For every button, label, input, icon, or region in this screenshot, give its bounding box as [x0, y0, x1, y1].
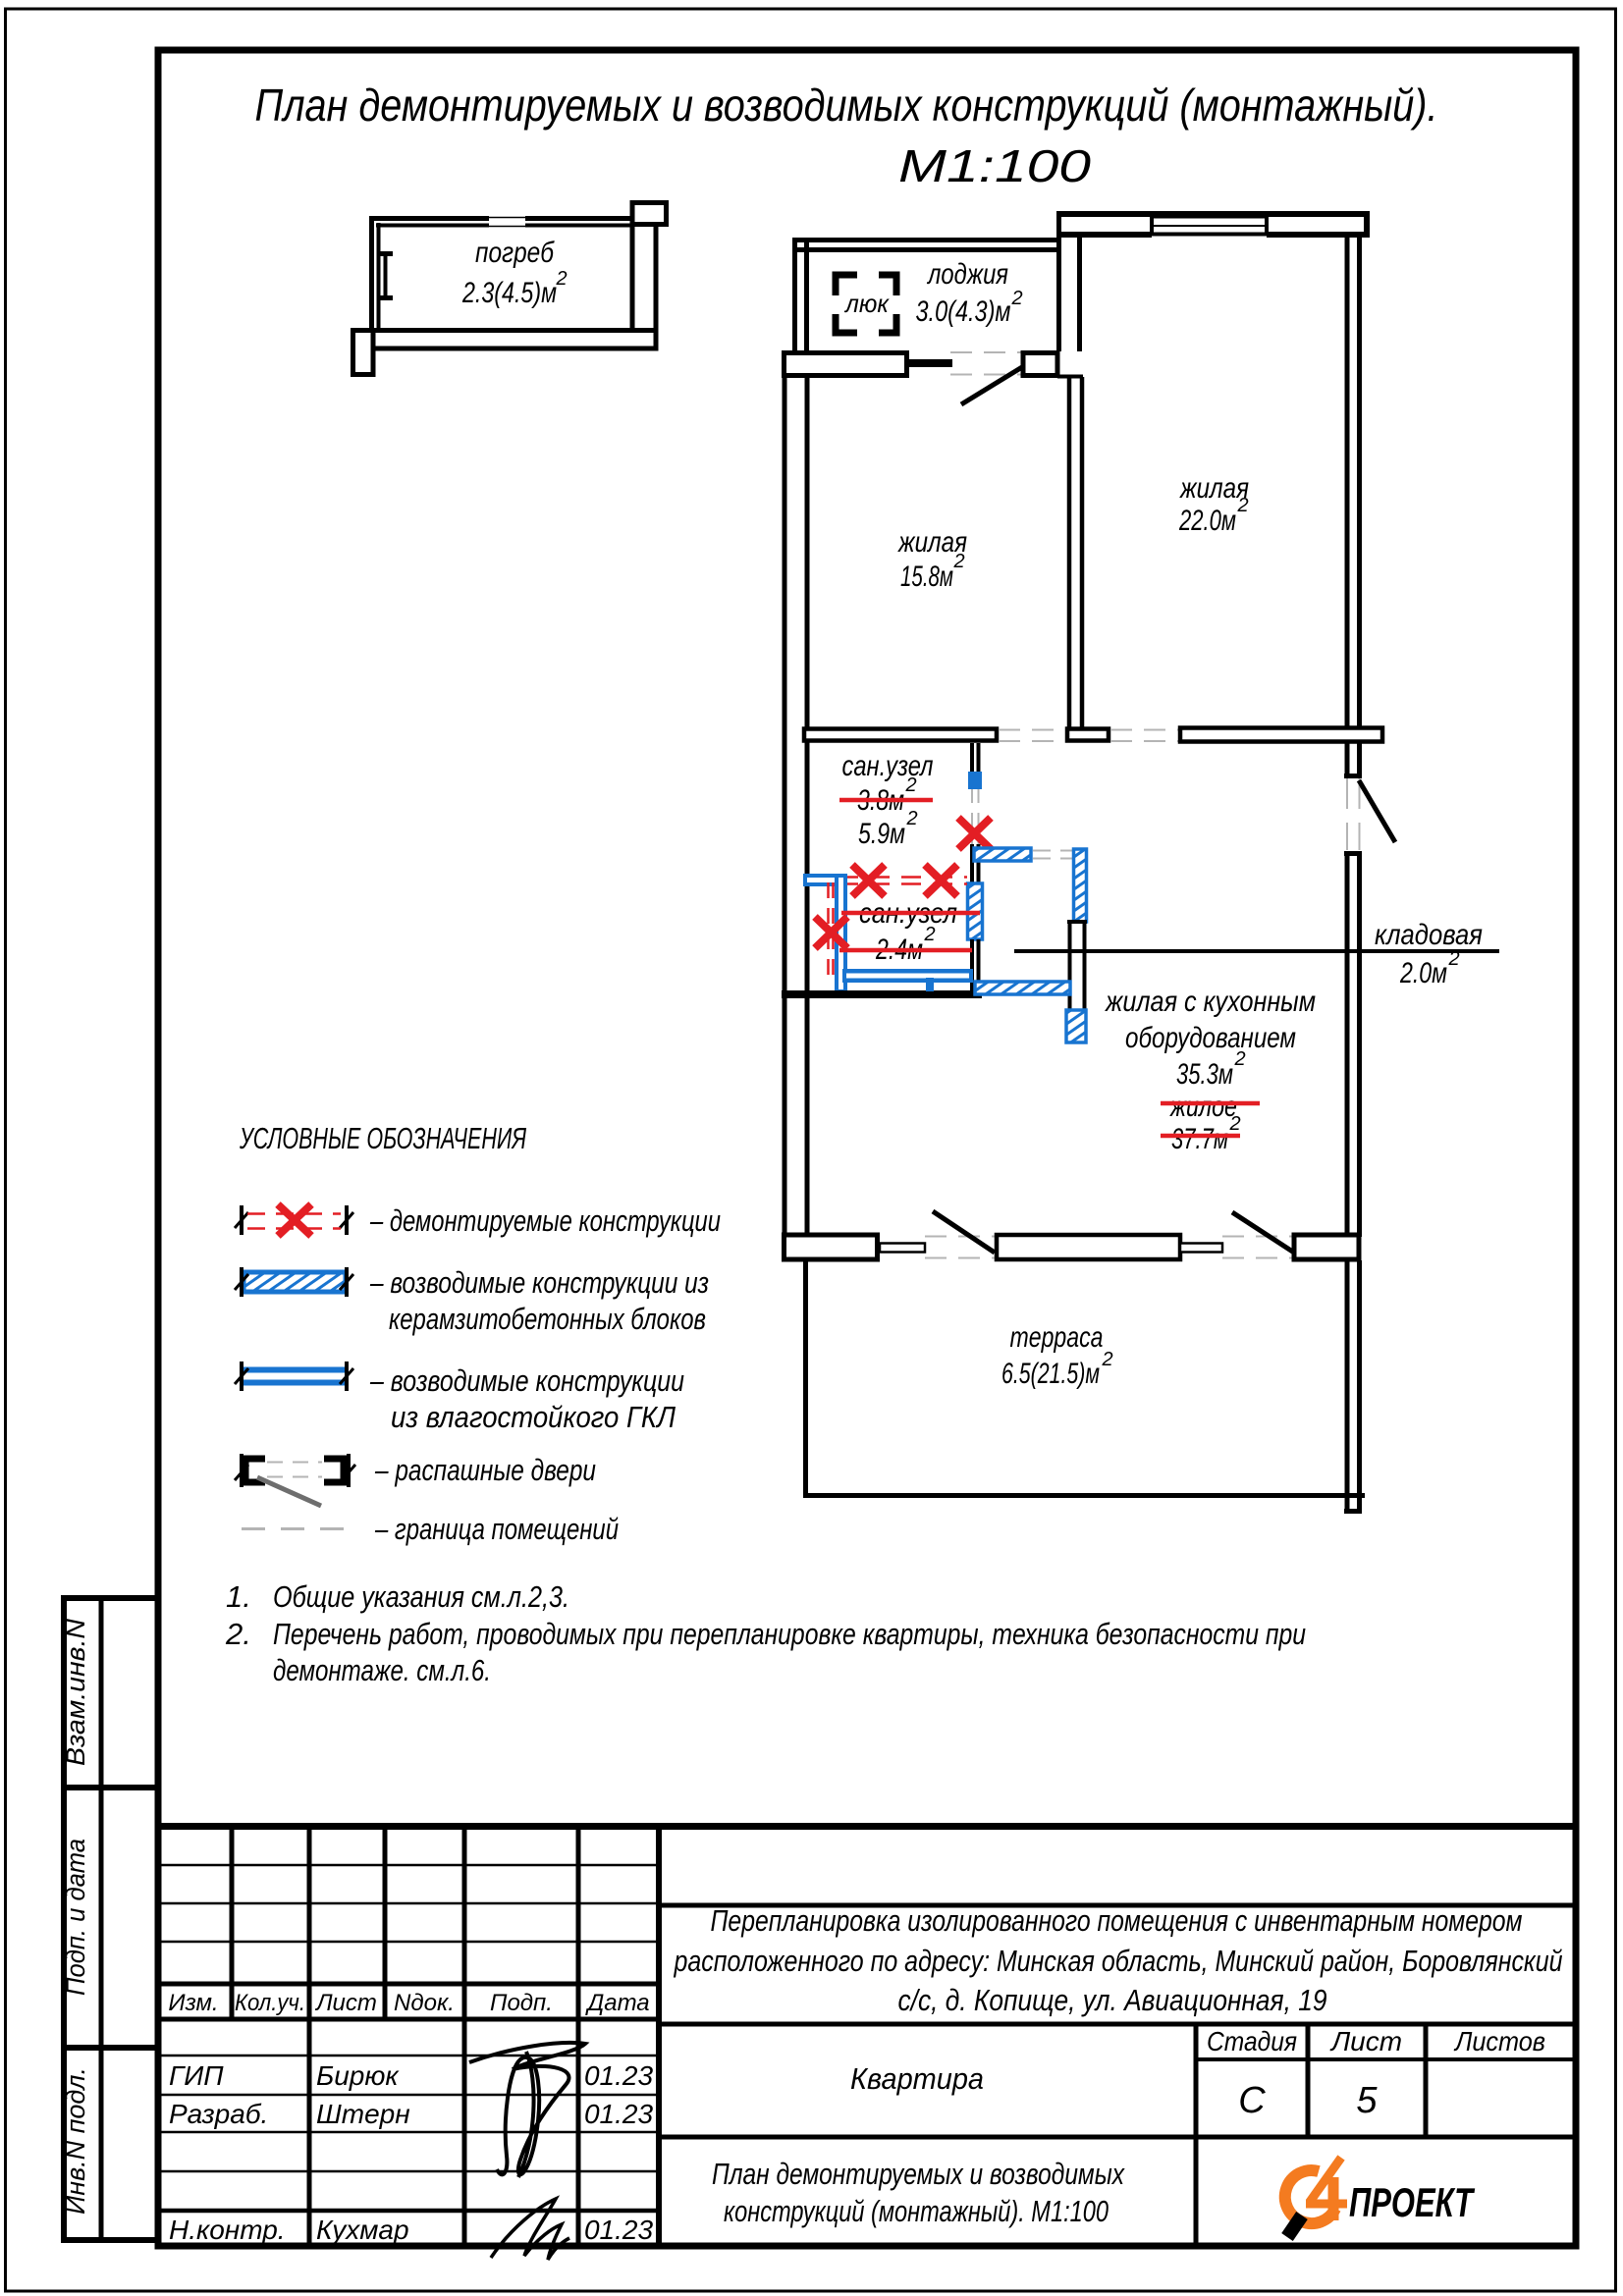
svg-text:6.5(21.5)м: 6.5(21.5)м [1001, 1358, 1100, 1390]
svg-text:2.: 2. [225, 1617, 251, 1651]
svg-text:Взам.инв.N: Взам.инв.N [61, 1618, 90, 1766]
svg-text:5: 5 [1356, 2080, 1378, 2121]
svg-text:ГИП: ГИП [169, 2060, 224, 2091]
svg-text:2: 2 [923, 924, 935, 945]
svg-text:расположенного по адресу: Минс: расположенного по адресу: Минская област… [674, 1944, 1563, 1978]
svg-text:2: 2 [1228, 1113, 1240, 1135]
svg-text:погреб: погреб [475, 237, 555, 269]
svg-text:37.7м: 37.7м [1171, 1123, 1228, 1155]
svg-text:– граница помещений: – граница помещений [374, 1512, 619, 1546]
svg-text:5.9м: 5.9м [858, 818, 905, 850]
svg-text:01.23: 01.23 [584, 2215, 653, 2245]
svg-text:УСЛОВНЫЕ ОБОЗНАЧЕНИЯ: УСЛОВНЫЕ ОБОЗНАЧЕНИЯ [239, 1121, 526, 1155]
svg-text:Перечень работ, проводимых при: Перечень работ, проводимых при переплани… [273, 1617, 1306, 1651]
svg-text:– распашные двери: – распашные двери [374, 1453, 596, 1487]
svg-text:С: С [1238, 2080, 1266, 2121]
svg-text:терраса: терраса [1010, 1321, 1104, 1354]
svg-text:2: 2 [1447, 948, 1459, 970]
svg-text:– демонтируемые конструкции: – демонтируемые конструкции [369, 1203, 721, 1238]
svg-text:сан.узел: сан.узел [842, 750, 934, 782]
svg-text:2: 2 [1236, 495, 1248, 516]
svg-text:2.3(4.5)м: 2.3(4.5)м [461, 277, 557, 309]
svg-text:Лист: Лист [314, 1990, 377, 2016]
svg-text:Листов: Листов [1453, 2026, 1545, 2056]
svg-text:Квартира: Квартира [850, 2061, 984, 2096]
svg-text:2: 2 [1010, 288, 1022, 309]
svg-text:– возводимые конструкции: – возводимые конструкции [369, 1363, 684, 1398]
svg-text:Подп.: Подп. [490, 1990, 553, 2016]
svg-text:Штерн: Штерн [316, 2099, 410, 2129]
svg-text:План демонтируемых и возвод: План демонтируемых и возводимых конструк… [255, 80, 1438, 131]
svg-text:Изм.: Изм. [168, 1990, 218, 2016]
svg-text:2: 2 [905, 808, 917, 829]
svg-text:Лист: Лист [1329, 2026, 1402, 2056]
svg-text:с/с, д. Копище, ул. Авиационна: с/с, д. Копище, ул. Авиационная, 19 [898, 1983, 1327, 2017]
svg-text:люк: люк [843, 289, 891, 318]
svg-text:жилое: жилое [1168, 1091, 1237, 1123]
svg-text:оборудованием: оборудованием [1125, 1022, 1296, 1054]
svg-text:Н.контр.: Н.контр. [169, 2215, 286, 2245]
svg-text:из влагостойкого ГКЛ: из влагостойкого ГКЛ [391, 1400, 676, 1434]
svg-text:2: 2 [904, 774, 916, 796]
svg-text:лоджия: лоджия [926, 258, 1008, 291]
svg-text:01.23: 01.23 [584, 2060, 653, 2091]
svg-text:Общие указания см.л.2,3.: Общие указания см.л.2,3. [273, 1579, 569, 1614]
svg-text:жилая с кухонным: жилая с кухонным [1104, 986, 1316, 1018]
svg-text:Дата: Дата [584, 1990, 649, 2016]
svg-text:2: 2 [555, 268, 567, 290]
svg-text:Подп. и дата: Подп. и дата [61, 1839, 90, 1996]
svg-text:Инв.N подл.: Инв.N подл. [61, 2067, 90, 2215]
svg-text:15.8м: 15.8м [900, 561, 953, 593]
svg-text:2: 2 [1101, 1349, 1112, 1370]
svg-text:Кол.уч.: Кол.уч. [235, 1990, 305, 2016]
svg-text:Бирюк: Бирюк [316, 2060, 400, 2091]
svg-text:22.0м: 22.0м [1178, 505, 1236, 537]
svg-text:2: 2 [1233, 1048, 1245, 1070]
svg-text:демонтаже. см.л.6.: демонтаже. см.л.6. [273, 1653, 491, 1687]
svg-text:2: 2 [952, 551, 964, 572]
svg-text:керамзитобетонных блоков: керамзитобетонных блоков [389, 1302, 706, 1336]
svg-text:– возводимые конструкции из: – возводимые конструкции из [369, 1265, 709, 1300]
svg-text:35.3м: 35.3м [1176, 1058, 1233, 1091]
svg-text:1.: 1. [226, 1579, 251, 1614]
svg-text:План демонтируемых и возводимы: План демонтируемых и возводимых [712, 2157, 1125, 2191]
svg-text:кладовая: кладовая [1375, 919, 1483, 951]
svg-text:М1:100: М1:100 [898, 140, 1092, 191]
svg-text:2.0м: 2.0м [1399, 957, 1447, 989]
svg-text:Стадия: Стадия [1207, 2026, 1297, 2056]
svg-text:Nдок.: Nдок. [394, 1990, 455, 2016]
svg-text:ПРОЕКТ: ПРОЕКТ [1349, 2179, 1475, 2225]
svg-text:Разраб.: Разраб. [169, 2099, 268, 2129]
svg-text:конструкций (монтажный). М1:10: конструкций (монтажный). М1:100 [724, 2194, 1109, 2228]
svg-text:Кухмар: Кухмар [316, 2215, 409, 2245]
svg-text:3.0(4.3)м: 3.0(4.3)м [916, 295, 1011, 328]
svg-text:01.23: 01.23 [584, 2099, 653, 2129]
svg-text:Перепланировка изолированного: Перепланировка изолированного помещения … [711, 1903, 1523, 1938]
